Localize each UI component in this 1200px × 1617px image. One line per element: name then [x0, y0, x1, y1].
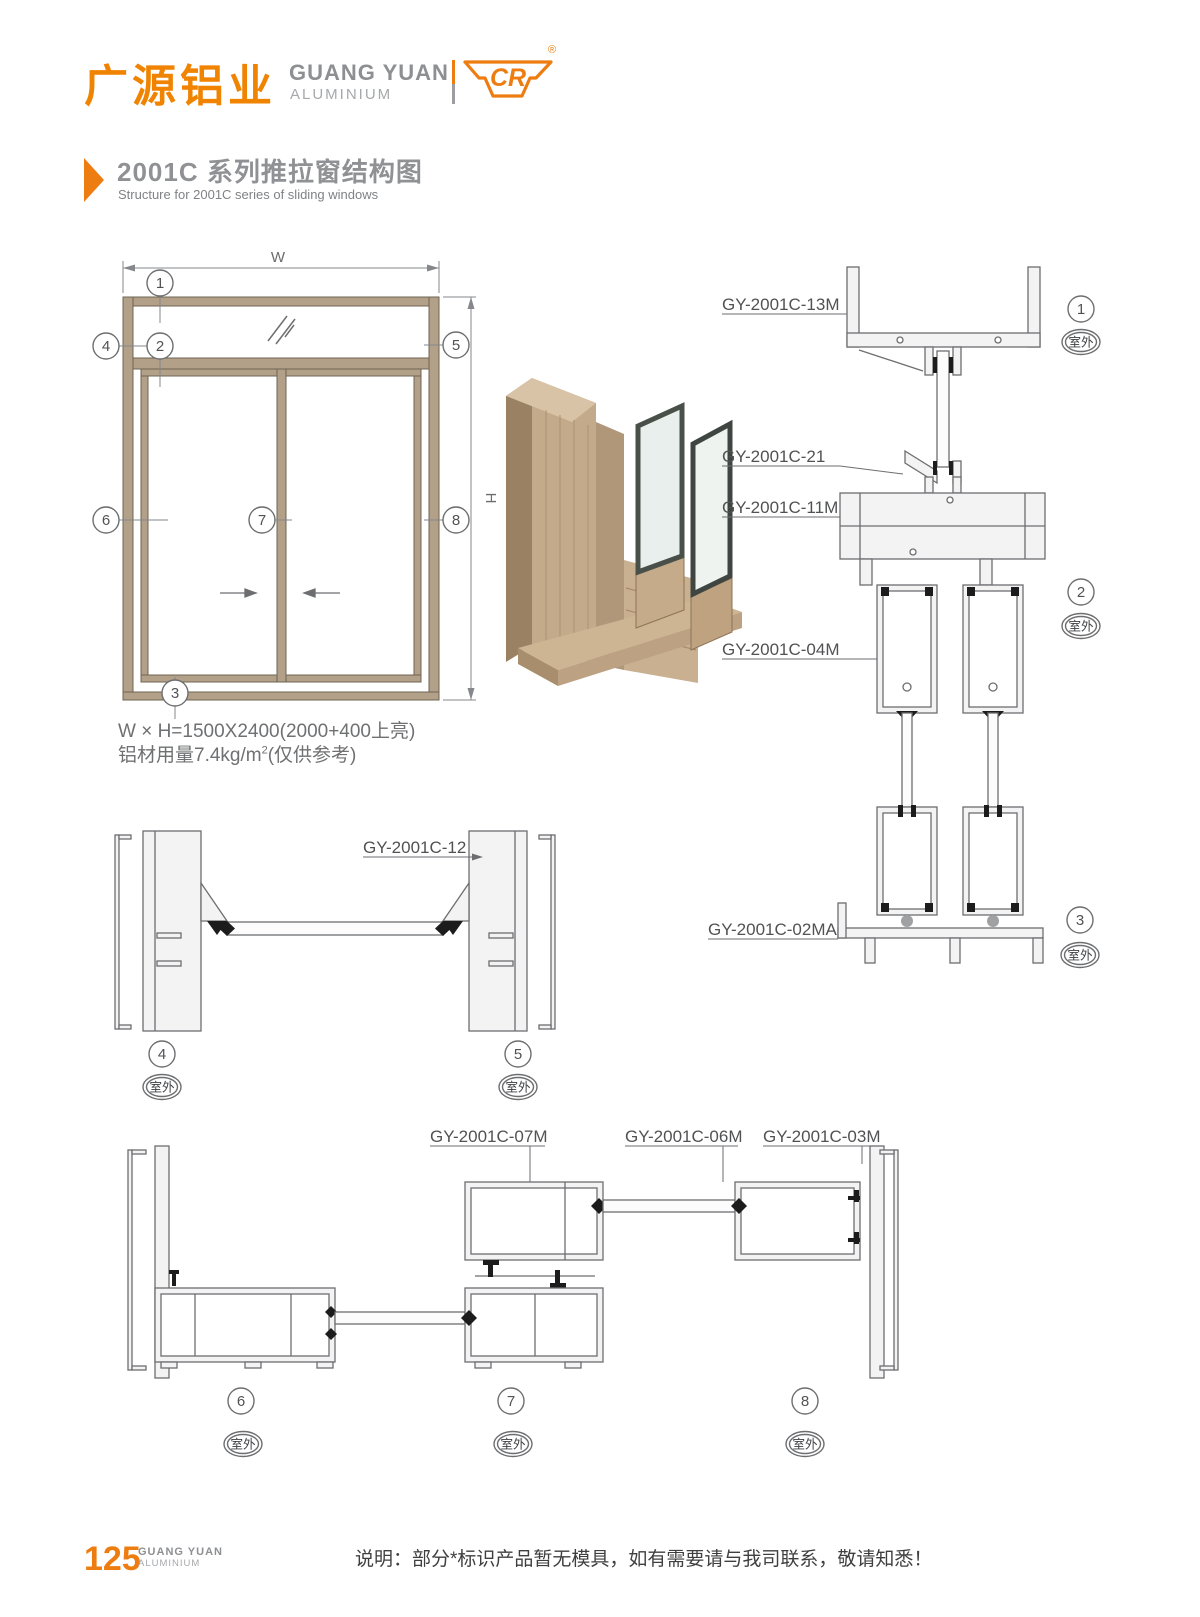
- bottom-section-labels: GY-2001C-07M GY-2001C-06M GY-2001C-03M: [430, 1127, 881, 1182]
- mid-callouts: [143, 1041, 537, 1100]
- glass-sash-right: [988, 713, 998, 807]
- outdoor-label-1: 室外: [1068, 335, 1094, 350]
- sash-bottom-left: [877, 805, 937, 927]
- cr-logo-icon: CR: [462, 52, 554, 106]
- glass-pane-rear: [638, 406, 682, 572]
- mid-horizontal-section-drawing: GY-2001C-12 4 5 室外 室外: [95, 795, 575, 1105]
- section-callout-3: 3: [1076, 912, 1084, 929]
- spec-aluminium-usage: 铝材用量7.4kg/m2(仅供参考): [118, 740, 356, 767]
- glass-top: [937, 351, 949, 467]
- section-callout-8: 8: [801, 1393, 809, 1410]
- callout-6: 6: [102, 512, 110, 529]
- label-03m: GY-2001C-03M: [763, 1127, 881, 1146]
- vertical-section-drawing: GY-2001C-13M GY-2001C-21 GY-2001C-11M GY…: [700, 255, 1120, 990]
- outdoor-label-8: 室外: [792, 1437, 818, 1452]
- outdoor-label-7: 室外: [500, 1437, 526, 1452]
- callout-5: 5: [452, 337, 460, 354]
- label-02ma: GY-2001C-02MA: [708, 920, 837, 939]
- profile-11m: [840, 477, 1045, 585]
- dim-w-label: W: [271, 249, 286, 266]
- glass-sash-left: [902, 713, 912, 807]
- brand-english: GUANG YUAN: [289, 60, 449, 86]
- label-11m: GY-2001C-11M: [722, 498, 838, 517]
- section-callout-5: 5: [514, 1046, 522, 1063]
- brand-subtitle: ALUMINIUM: [290, 86, 392, 103]
- jamb-right: [443, 831, 555, 1031]
- window-frame: [123, 297, 439, 700]
- outdoor-label-6: 室外: [230, 1437, 256, 1452]
- header-divider: [452, 60, 455, 104]
- glass-a: [335, 1312, 465, 1324]
- title-arrow-icon: [84, 158, 104, 202]
- brand-chinese: 广源铝业: [84, 50, 276, 114]
- section-callout-1: 1: [1077, 301, 1085, 318]
- label-12: GY-2001C-12: [363, 838, 466, 857]
- bottom-horizontal-section-drawing: GY-2001C-07M GY-2001C-06M GY-2001C-03M 6…: [95, 1120, 905, 1465]
- label-07m: GY-2001C-07M: [430, 1127, 548, 1146]
- outdoor-label-4: 室外: [149, 1080, 175, 1095]
- label-06m: GY-2001C-06M: [625, 1127, 743, 1146]
- section-callout-4: 4: [158, 1046, 166, 1063]
- footer-brand: GUANG YUAN: [138, 1546, 223, 1558]
- footer-note: 说明：部分*标识产品暂无模具，如有需要请与我司联系，敬请知悉！: [355, 1544, 932, 1571]
- callout-7: 7: [258, 512, 266, 529]
- spec-dimensions: W × H=1500X2400(2000+400上亮): [118, 716, 415, 743]
- callout-3: 3: [171, 685, 179, 702]
- glass-symbol: [268, 316, 295, 344]
- outdoor-label-5: 室外: [505, 1080, 531, 1095]
- sash-box-c: [731, 1182, 860, 1260]
- catalog-page: 广源铝业 GUANG YUAN ALUMINIUM CR ® 2001C 系列推…: [0, 0, 1200, 1617]
- label-21: GY-2001C-21: [722, 447, 825, 466]
- profile-04m-left: [877, 585, 937, 723]
- cr-logo-text: CR: [490, 64, 526, 92]
- interlock-hardware: [475, 1260, 595, 1288]
- section-callout-6: 6: [237, 1393, 245, 1410]
- interlock-lower-box: [461, 1288, 603, 1368]
- sash-bottom-right: [963, 805, 1023, 927]
- glass-b: [603, 1200, 735, 1212]
- profile-04m-right: [963, 585, 1023, 723]
- interlock-upper-box: [465, 1182, 607, 1260]
- page-subtitle: Structure for 2001C series of sliding wi…: [118, 187, 378, 202]
- jamb-left: [115, 831, 227, 1031]
- callout-1: 1: [156, 275, 164, 292]
- section-callout-7: 7: [507, 1393, 515, 1410]
- page-title: 2001C 系列推拉窗结构图: [117, 152, 423, 189]
- page-number: 125: [84, 1540, 141, 1579]
- label-13m: GY-2001C-13M: [722, 295, 840, 314]
- callout-8: 8: [452, 512, 460, 529]
- registered-mark: ®: [548, 44, 556, 56]
- outdoor-label-3: 室外: [1067, 948, 1093, 963]
- footer-brand-sub: ALUMINIUM: [138, 1558, 200, 1569]
- section-callout-2: 2: [1077, 584, 1085, 601]
- vertical-section-labels: GY-2001C-13M GY-2001C-21 GY-2001C-11M GY…: [708, 295, 903, 939]
- frame-jamb-right: [870, 1146, 898, 1378]
- window-elevation-drawing: W H: [80, 245, 500, 735]
- label-04m: GY-2001C-04M: [722, 640, 840, 659]
- glass-mid: [227, 922, 443, 935]
- sash-box-a: [155, 1288, 337, 1368]
- outdoor-label-2: 室外: [1068, 619, 1094, 634]
- callout-2: 2: [156, 338, 164, 355]
- callout-4: 4: [102, 338, 110, 355]
